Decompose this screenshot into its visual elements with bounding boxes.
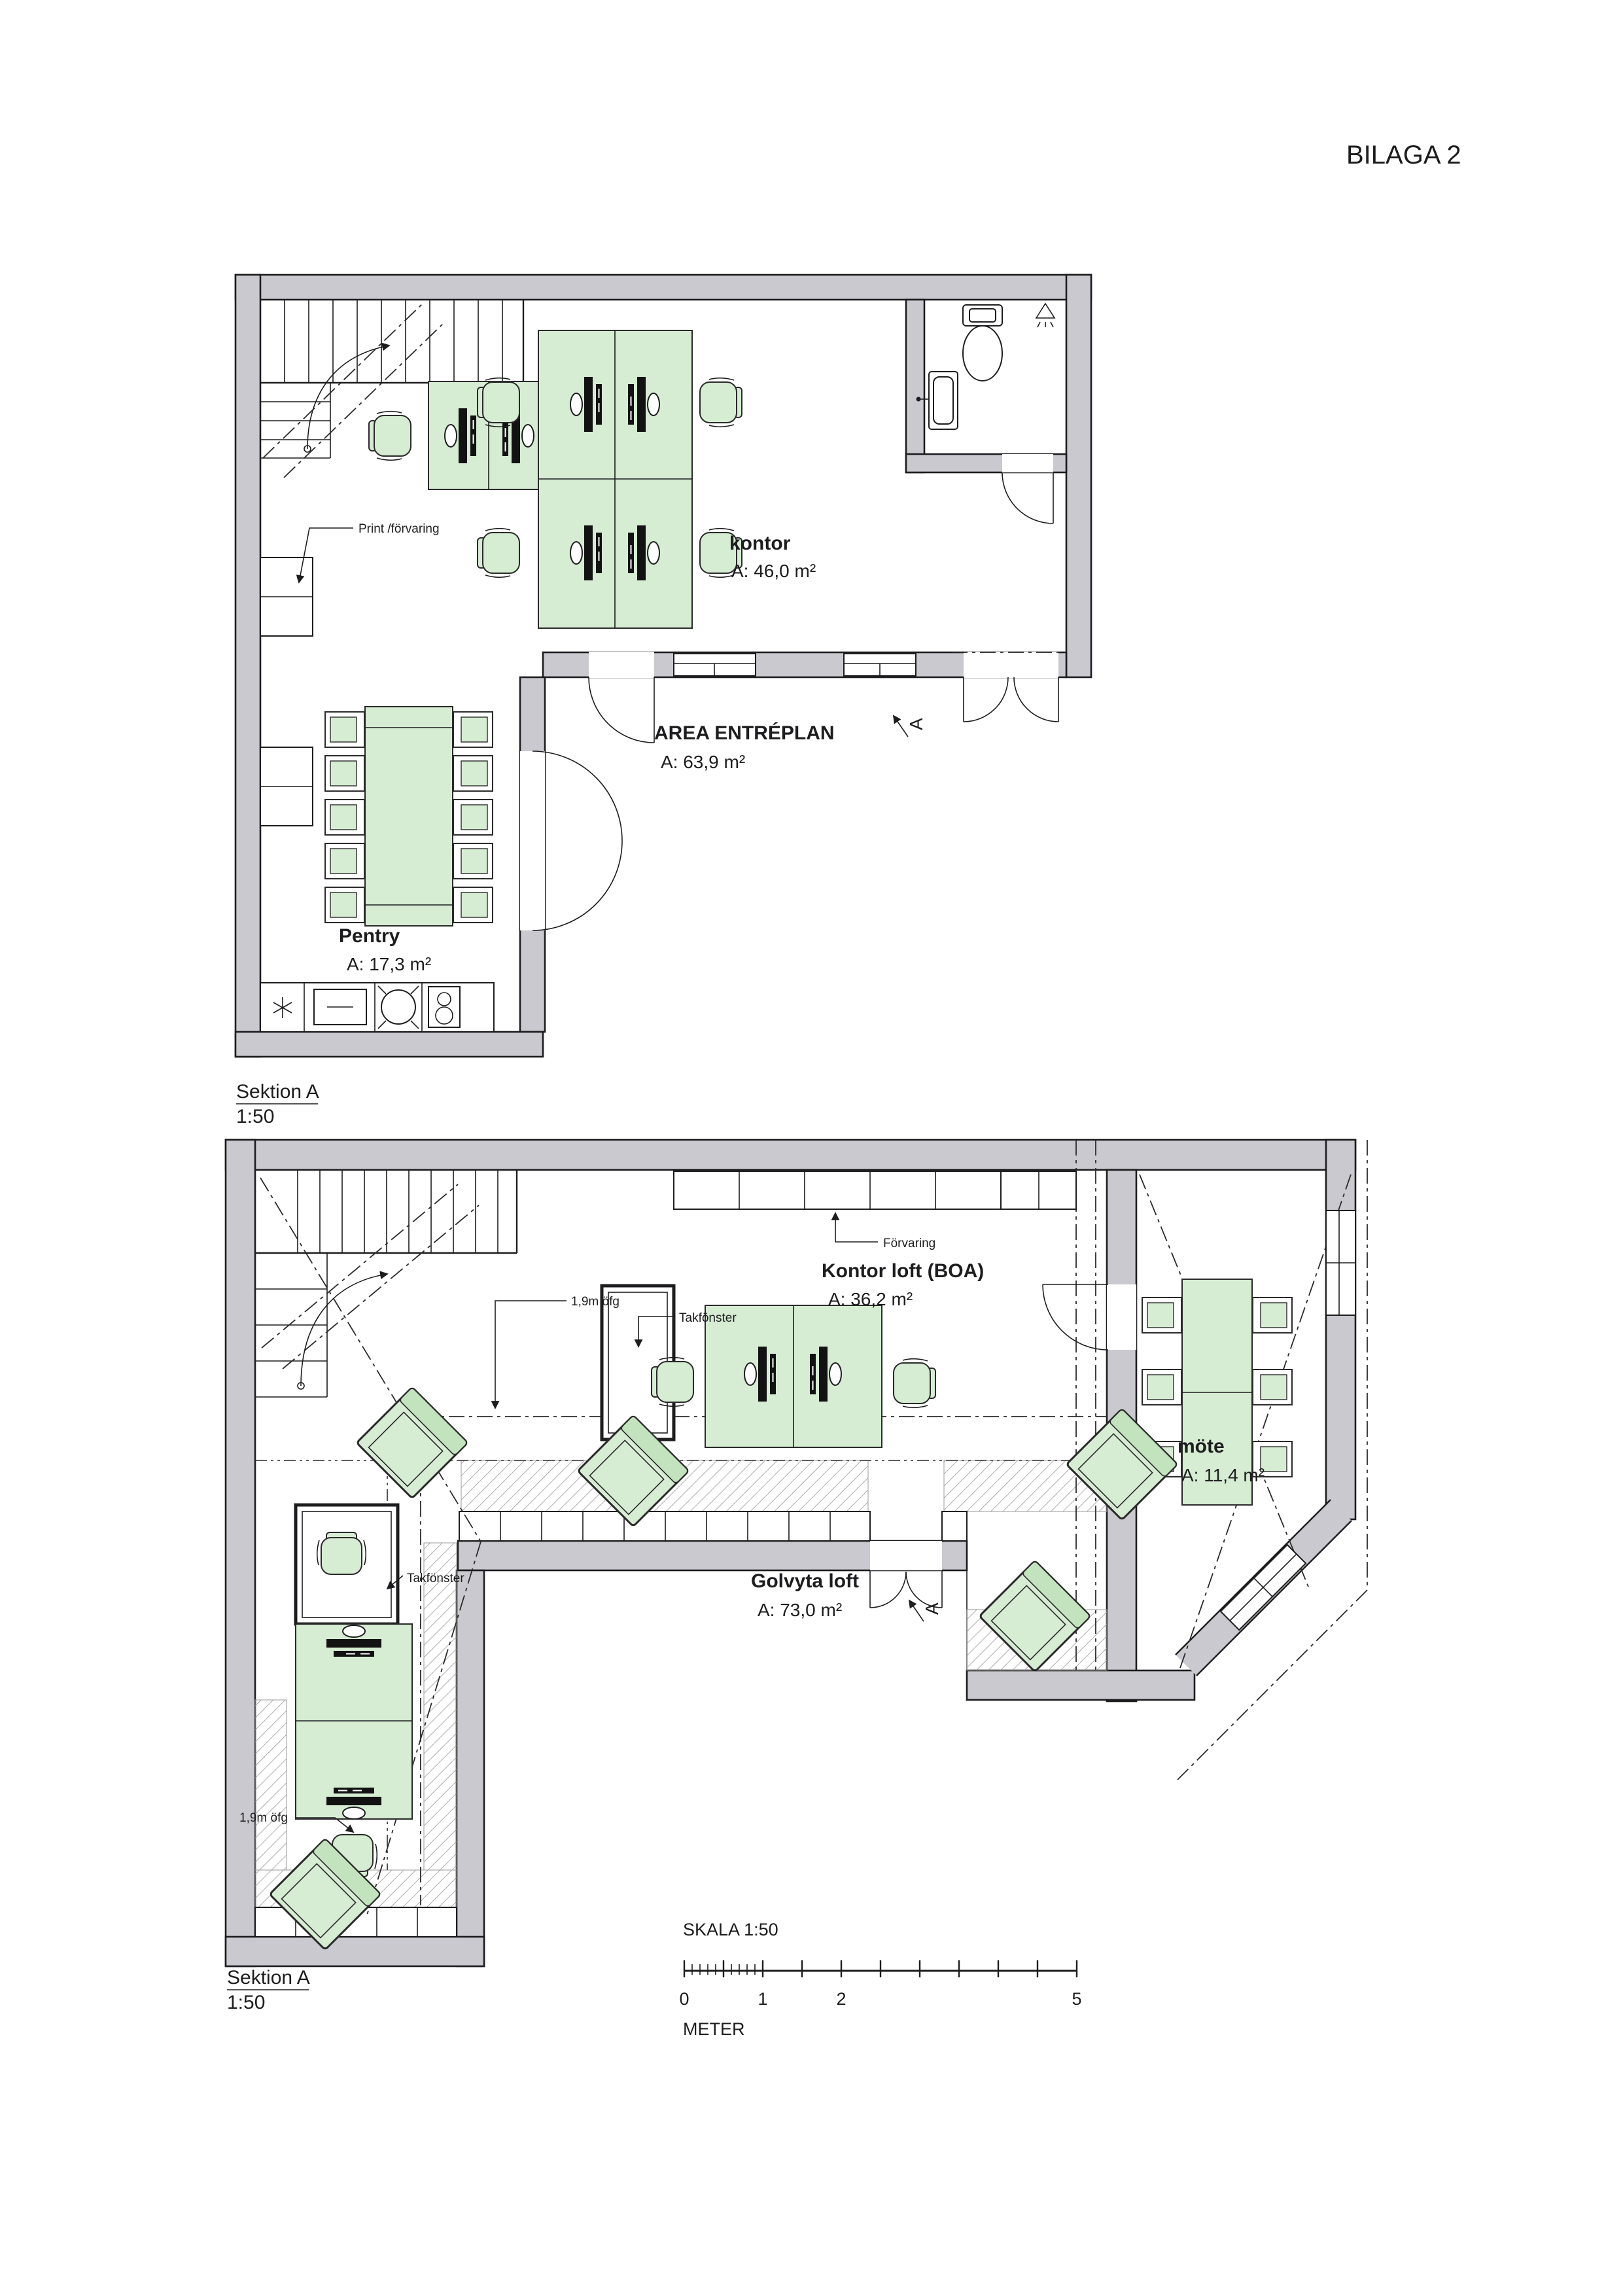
office-chair bbox=[369, 412, 411, 461]
kitchen-counter bbox=[260, 983, 494, 1032]
storage-leader-arrow bbox=[835, 1213, 878, 1242]
headroom-leader-arrow bbox=[296, 1818, 353, 1832]
loft-double-door bbox=[870, 1541, 942, 1608]
door-opening bbox=[589, 652, 654, 678]
bottom-floor-plan: Förvaring Takfönster 1,9m öfg Kontor lof… bbox=[226, 1140, 1367, 2013]
bathroom bbox=[916, 304, 1055, 429]
chamfer-window bbox=[1221, 1545, 1306, 1630]
skylight-annotation-1: Takfönster bbox=[679, 1311, 737, 1325]
entreplan-area: A: 63,9 m² bbox=[661, 752, 745, 772]
top-section-label: Sektion A bbox=[236, 1081, 319, 1103]
section-marker-A: A bbox=[909, 1600, 942, 1621]
bottom-section-label: Sektion A bbox=[227, 1967, 310, 1988]
page-title: BILAGA 2 bbox=[1346, 141, 1461, 169]
facing-desk-pair bbox=[296, 1624, 412, 1819]
lounge-chair bbox=[357, 1387, 468, 1498]
storage-annotation: Förvaring bbox=[883, 1237, 935, 1250]
loft-desk-pair bbox=[705, 1305, 882, 1447]
scale-bar-unit: METER bbox=[683, 2019, 745, 2039]
stair-treads bbox=[298, 1170, 498, 1253]
desk-cluster-4 bbox=[538, 330, 692, 628]
window bbox=[844, 654, 916, 676]
top-section-scale: 1:50 bbox=[236, 1106, 274, 1127]
section-marker-A: A bbox=[894, 716, 926, 737]
toilet-icon bbox=[963, 305, 1002, 381]
window bbox=[674, 654, 756, 676]
loft-staircase bbox=[255, 1170, 517, 1397]
shower-icon bbox=[1036, 304, 1055, 327]
mote-east-window bbox=[1326, 1210, 1355, 1315]
svg-text:A: A bbox=[922, 1602, 942, 1615]
kontor-loft-name: Kontor loft (BOA) bbox=[822, 1260, 984, 1282]
office-chair bbox=[478, 529, 519, 578]
mote-room-name: möte bbox=[1178, 1436, 1225, 1457]
kontor-room-name: kontor bbox=[729, 533, 791, 554]
golvyta-loft-name: Golvyta loft bbox=[751, 1570, 859, 1592]
bathroom-door bbox=[1002, 454, 1053, 523]
mote-room-area: A: 11,4 m² bbox=[1181, 1465, 1265, 1485]
skylight-annotation-2: Takfönster bbox=[407, 1572, 464, 1585]
office-chair bbox=[700, 378, 742, 427]
scale-label-2: 2 bbox=[836, 1989, 846, 2009]
scale-bar-title: SKALA 1:50 bbox=[683, 1920, 778, 1939]
pentry-room-area: A: 17,3 m² bbox=[347, 954, 431, 974]
bathroom-west-wall bbox=[906, 300, 924, 472]
mote-room bbox=[1043, 1210, 1355, 1630]
stair-treads bbox=[285, 300, 502, 383]
storage-cabinets bbox=[674, 1171, 1076, 1209]
kontor-loft-area: A: 36,2 m² bbox=[828, 1289, 913, 1309]
svg-text:A: A bbox=[906, 718, 926, 730]
office-chair bbox=[894, 1359, 935, 1408]
door-swing-arc bbox=[589, 677, 654, 743]
entrance-double-door bbox=[952, 652, 1065, 722]
scale-label-1: 1 bbox=[758, 1989, 767, 2009]
entreplan-name: AREA ENTRÉPLAN bbox=[654, 722, 835, 744]
headroom-leader-arrow bbox=[495, 1301, 567, 1408]
mote-door bbox=[1043, 1284, 1136, 1350]
headroom-annotation-1: 1,9m öfg bbox=[571, 1295, 620, 1309]
scale-label-0: 0 bbox=[679, 1989, 689, 2009]
scale-major-ticks bbox=[684, 1960, 1077, 1977]
hob-icon bbox=[428, 987, 460, 1027]
print-storage-annotation: Print /förvaring bbox=[358, 522, 440, 536]
document-page: BILAGA 2 bbox=[0, 0, 1623, 2296]
golvyta-loft-area: A: 73,0 m² bbox=[758, 1600, 842, 1620]
pentry-double-door bbox=[520, 751, 622, 930]
sink-round-icon bbox=[378, 986, 419, 1029]
pentry-table bbox=[365, 707, 453, 926]
pentry-room-name: Pentry bbox=[339, 925, 400, 947]
headroom-annotation-2: 1,9m öfg bbox=[239, 1811, 288, 1825]
scale-label-5: 5 bbox=[1072, 1989, 1081, 2009]
bottom-section-scale: 1:50 bbox=[227, 1992, 265, 2013]
scale-bar: SKALA 1:50 0 1 2 5 METER bbox=[679, 1920, 1081, 2039]
kontor-furniture bbox=[369, 330, 742, 628]
scale-minor-ticks bbox=[692, 1964, 755, 1975]
kontor-room-area: A: 46,0 m² bbox=[731, 561, 816, 581]
top-floor-plan: Print /förvaring kontor A: 46,0 m² AREA … bbox=[236, 275, 1091, 1127]
oven-icon bbox=[314, 989, 366, 1025]
print-storage-cabinets bbox=[260, 557, 313, 826]
mote-south-wall bbox=[967, 1670, 1195, 1700]
stair-direction-arrow bbox=[301, 1274, 387, 1386]
floorplan-drawing: BILAGA 2 bbox=[0, 0, 1623, 2296]
